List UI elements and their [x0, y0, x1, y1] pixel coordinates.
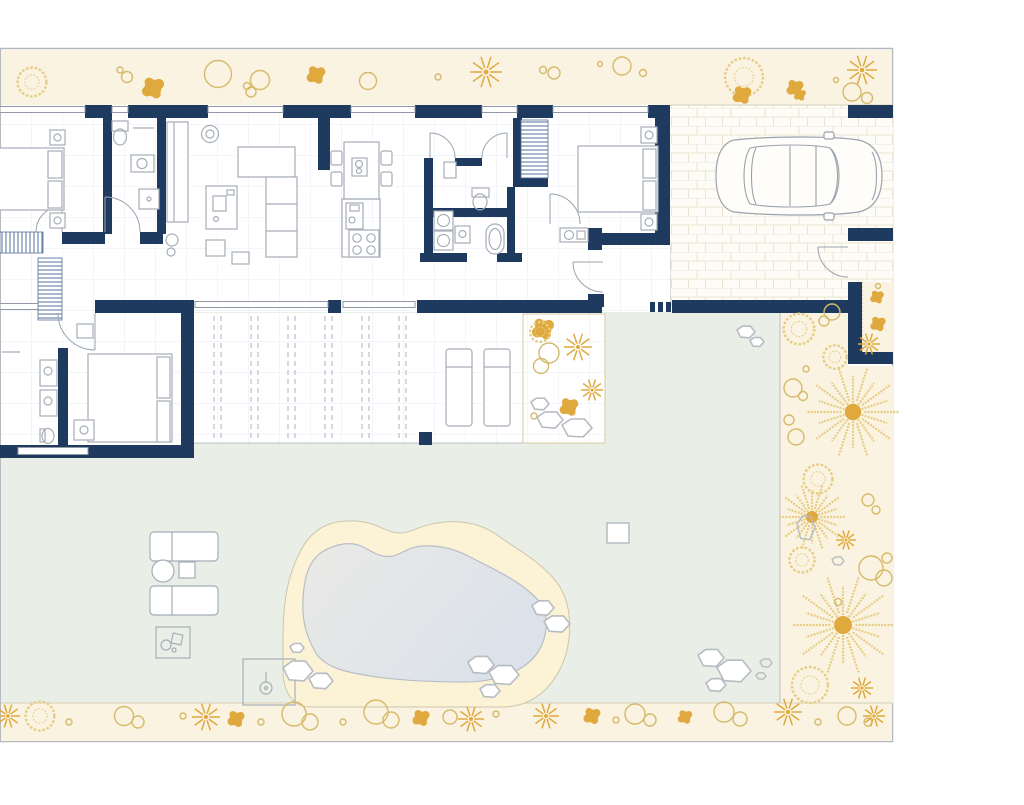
wall-segment: [848, 228, 893, 241]
wall-segment: [497, 253, 522, 262]
wall-segment: [517, 105, 553, 118]
wall-segment: [95, 300, 183, 313]
wall-segment: [848, 105, 893, 118]
wall-segment: [672, 300, 850, 313]
wall-segment: [513, 178, 548, 187]
window: [482, 107, 517, 113]
wall-segment: [417, 300, 602, 313]
wall-segment: [650, 302, 655, 312]
window: [0, 107, 85, 113]
window: [553, 107, 648, 113]
wall-segment: [157, 118, 166, 234]
car: [716, 132, 882, 220]
stone: [531, 398, 549, 410]
window: [343, 302, 415, 308]
bottom-garden-band: [1, 703, 892, 741]
stone: [737, 326, 755, 338]
right-garden-strip: [780, 312, 848, 366]
window: [112, 107, 128, 113]
stone: [290, 644, 304, 653]
garden-table: [607, 523, 629, 543]
sofa: [238, 147, 295, 177]
wardrobe: [38, 258, 62, 320]
wall-segment: [588, 228, 602, 250]
wall-segment: [181, 300, 194, 458]
wall-segment: [420, 253, 467, 262]
wall-segment: [103, 118, 112, 234]
window: [351, 107, 415, 113]
coffee-table: [206, 186, 237, 229]
wall-segment: [85, 105, 112, 118]
window: [195, 302, 328, 308]
side-table-square: [179, 562, 195, 578]
wall-segment: [415, 105, 482, 118]
side-table-round: [152, 560, 174, 582]
wall-segment: [58, 348, 68, 445]
window: [208, 107, 283, 113]
staircase: [521, 120, 548, 178]
floor-plan-page: [0, 0, 1024, 800]
wall-segment: [658, 302, 663, 312]
wall-segment: [666, 302, 671, 312]
wall-segment: [140, 232, 163, 244]
window: [18, 448, 88, 455]
wall-segment: [507, 187, 515, 262]
wall-segment: [62, 232, 105, 244]
wall-segment: [128, 105, 208, 118]
wall-segment: [455, 158, 482, 166]
wall-segment: [848, 352, 893, 364]
wall-segment: [600, 233, 670, 245]
wall-segment: [318, 118, 330, 170]
wall-segment: [283, 105, 351, 118]
wall-segment: [424, 158, 433, 262]
top-garden-band: [1, 50, 892, 105]
sofa: [266, 177, 297, 257]
radiator-unit: [0, 232, 43, 253]
wall-segment: [328, 300, 341, 313]
car-mirror: [824, 213, 834, 220]
stone: [750, 338, 764, 347]
wall-segment: [848, 282, 862, 354]
floor-plan-image: [0, 0, 1024, 800]
car-mirror: [824, 132, 834, 139]
wall-segment: [419, 432, 432, 445]
